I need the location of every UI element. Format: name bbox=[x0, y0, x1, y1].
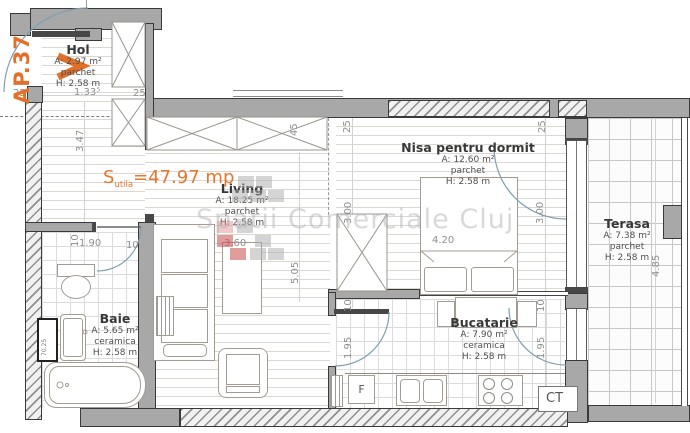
dimension-label: 10 bbox=[537, 299, 547, 312]
bedroom-terrace-glazed-door bbox=[566, 140, 587, 290]
area-symbol: S bbox=[103, 167, 114, 188]
room-label-hol: Hol A: 2.97 m² parchet H: 2.58 m bbox=[54, 42, 101, 90]
sofa-cushion bbox=[161, 239, 208, 273]
fridge-label: F bbox=[358, 383, 364, 396]
room-height: H: 2.58 m bbox=[54, 79, 101, 90]
dimension-label: 1.95 bbox=[344, 337, 354, 359]
room-floor: parchet bbox=[216, 207, 269, 218]
hob bbox=[478, 375, 523, 406]
dimension-line-hol bbox=[84, 102, 85, 242]
bed-pillow bbox=[424, 267, 467, 292]
wall-bottom-hatched bbox=[180, 408, 568, 427]
fridge: F bbox=[348, 375, 375, 404]
total-usable-area-label: Sutila=47.97 mp bbox=[103, 167, 234, 188]
wall-kitchen-top bbox=[328, 289, 420, 299]
room-floor: parchet bbox=[54, 68, 101, 79]
dimension-label: 25 bbox=[343, 120, 353, 133]
section-dash-line bbox=[0, 116, 150, 117]
armchair-seat bbox=[226, 354, 260, 385]
high-window-line bbox=[233, 90, 343, 97]
shaft-label: 70.25 bbox=[42, 339, 48, 356]
wall-top-hatched-segment-2 bbox=[558, 100, 587, 117]
dimension-label: 3.60 bbox=[224, 239, 246, 249]
room-label-baie: Baie A: 5.65 m² ceramica H: 2.58 m bbox=[91, 311, 138, 359]
room-area: A: 12.60 m² bbox=[401, 155, 535, 166]
room-height: H: 2.58 m bbox=[401, 177, 535, 188]
dimension-label: 10 bbox=[344, 299, 354, 312]
dimension-label: 5.05 bbox=[291, 262, 301, 284]
dimension-label: 3.47 bbox=[76, 130, 86, 152]
room-label-terasa: Terasa A: 7.38 m² parchet H: 2.58 m bbox=[603, 216, 650, 264]
sink-basin bbox=[400, 379, 420, 403]
room-area: A: 18.25 m² bbox=[216, 196, 269, 207]
room-floor: parchet bbox=[401, 166, 535, 177]
dimension-label: 4.20 bbox=[432, 236, 454, 246]
room-name: Terasa bbox=[603, 216, 650, 231]
dimension-label: 10 bbox=[126, 241, 139, 251]
dimension-label: 45 bbox=[290, 123, 300, 136]
wall-entry-top bbox=[30, 8, 162, 30]
kitchen-counter-edge bbox=[345, 373, 565, 374]
boiler-label: CT bbox=[546, 392, 563, 405]
entry-door-threshold bbox=[32, 31, 90, 37]
wall-top-hatched-segment bbox=[388, 100, 550, 117]
apartment-number-label: AP.37 bbox=[10, 34, 34, 104]
bathroom-door-jamb bbox=[92, 222, 96, 232]
kitchen-chair bbox=[517, 301, 537, 327]
room-label-living: Living A: 18.25 m² parchet H: 2.58 m bbox=[216, 181, 269, 229]
room-area: A: 2.97 m² bbox=[54, 57, 101, 68]
wall-left-exterior-hatched bbox=[25, 102, 42, 420]
room-height: H: 2.58 m bbox=[216, 218, 269, 229]
room-area: A: 5.65 m² bbox=[91, 326, 138, 337]
room-label-bucatarie: Bucatarie A: 7.90 m² ceramica H: 2.58 m bbox=[450, 315, 518, 363]
bed-pillow bbox=[471, 267, 514, 292]
floor-plan: F CT 70.25 bbox=[0, 0, 690, 433]
dimension-label: 4.85 bbox=[652, 255, 662, 277]
room-label-nisa: Nisa pentru dormit A: 12.60 m² parchet H… bbox=[401, 140, 535, 188]
terrace-railing bbox=[681, 118, 688, 406]
dimension-label: 3.00 bbox=[344, 202, 354, 224]
kitchen-terrace-glazed-door bbox=[566, 308, 587, 362]
niche-boundary-dash-line bbox=[328, 118, 329, 215]
sink-basin bbox=[423, 379, 443, 403]
room-name: Baie bbox=[91, 311, 138, 326]
kitchen-shaft bbox=[330, 375, 343, 407]
bathroom-sink-basin bbox=[63, 318, 83, 357]
room-height: H: 2.58 m bbox=[91, 348, 138, 359]
dimension-label: 1.95 bbox=[537, 337, 547, 359]
room-name: Hol bbox=[54, 42, 101, 57]
wall-entry-left-stub bbox=[10, 13, 31, 36]
terrace-pillar bbox=[663, 205, 682, 239]
wall-terrace-side-top bbox=[565, 118, 588, 140]
wall-hol-right bbox=[145, 23, 154, 150]
dimension-label: 25 bbox=[133, 89, 146, 99]
room-area: A: 7.38 m² bbox=[603, 231, 650, 242]
room-floor: ceramica bbox=[91, 337, 138, 348]
room-area: A: 7.90 m² bbox=[450, 330, 518, 341]
armchair-front bbox=[226, 386, 260, 393]
sofa-armrest bbox=[163, 344, 207, 357]
room-name: Bucatarie bbox=[450, 315, 518, 330]
room-name: Nisa pentru dormit bbox=[401, 140, 535, 155]
wall-terrace-bottom bbox=[588, 405, 690, 422]
room-height: H: 2.58 m bbox=[450, 352, 518, 363]
area-value: =47.97 mp bbox=[133, 167, 234, 188]
wall-bathroom-top bbox=[25, 222, 93, 232]
dimension-label: 1.90 bbox=[79, 239, 101, 249]
wall-bottom-left bbox=[80, 408, 180, 427]
dimension-label: 3.00 bbox=[536, 202, 546, 224]
radiator bbox=[156, 296, 174, 336]
area-subscript: utila bbox=[114, 180, 133, 190]
living-passage-jamb bbox=[145, 214, 154, 222]
room-floor: ceramica bbox=[450, 341, 518, 352]
toilet-tank bbox=[57, 264, 95, 277]
bathtub-inner bbox=[49, 366, 141, 404]
coffee-table bbox=[222, 242, 262, 314]
room-floor: parchet bbox=[603, 242, 650, 253]
dimension-line-right-chain bbox=[545, 118, 546, 403]
room-height: H: 2.58 m bbox=[603, 253, 650, 264]
dimension-label: 25 bbox=[538, 120, 548, 133]
